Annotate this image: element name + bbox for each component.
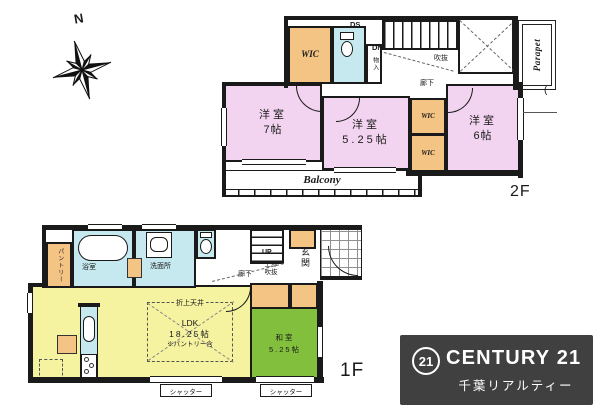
window-marker	[221, 108, 227, 146]
kitchen-sink-fixture	[83, 316, 95, 342]
floor2-label: 2F	[510, 183, 531, 201]
closet-b	[290, 283, 318, 309]
toilet-tank-fixture	[340, 32, 354, 40]
washitsu-room: 和室 5.25帖	[250, 307, 320, 380]
wall-segment	[284, 16, 288, 88]
toilet-bowl-fixture	[341, 41, 353, 57]
north-label: N	[73, 10, 85, 26]
ldk-caption: LDK 18.25帖 ※パントリー含	[147, 318, 233, 350]
company-name: 千葉リアルティー	[446, 375, 586, 394]
pantry-label: パントリー	[55, 248, 63, 283]
floorplan-canvas: N WIC 物入 洋室 7帖 洋室 5.25帖 WIC WIC	[0, 0, 600, 412]
wall-segment	[42, 225, 46, 288]
pantry: パントリー	[46, 242, 72, 288]
window-marker	[242, 159, 306, 165]
toilet-tank-fixture	[200, 232, 212, 238]
wic-label: WIC	[301, 49, 319, 60]
window-marker	[517, 98, 524, 140]
bathroom-label: 浴室	[82, 262, 96, 272]
wall-segment	[320, 276, 362, 280]
vanity-basin-fixture	[150, 237, 168, 252]
balcony-label: Balcony	[303, 174, 340, 188]
ldk-note: ※パントリー含	[147, 341, 233, 350]
shutter-box-left: シャッター	[160, 384, 212, 397]
storage-label: 物入	[370, 57, 378, 71]
stairs-2f	[382, 20, 458, 50]
bathtub-fixture	[78, 235, 128, 261]
room-name: 洋室	[259, 109, 287, 123]
void-label: 吹抜	[434, 53, 448, 63]
window-marker	[256, 376, 314, 383]
parapet-label: Parapet	[532, 39, 542, 72]
stairs-down-label: DN	[372, 43, 383, 52]
room-name: 洋室	[352, 119, 380, 133]
wall-segment	[513, 16, 518, 90]
window-marker	[142, 224, 176, 230]
parapet: Parapet	[518, 20, 556, 90]
duct-space-label: DS	[350, 20, 360, 29]
bath-mat	[127, 258, 142, 278]
balcony-railing	[222, 189, 422, 197]
ldk-size: 18.25帖	[147, 329, 233, 340]
window-marker	[27, 293, 33, 313]
window-marker	[334, 167, 396, 173]
leader-line	[523, 112, 557, 113]
wic-closet-a: WIC	[410, 98, 446, 135]
counter-table	[57, 335, 77, 354]
washroom-label: 洗面所	[150, 261, 171, 271]
wic-closet-b: WIC	[410, 134, 446, 172]
ceiling-label: 折上天井	[147, 298, 233, 308]
closet-a	[250, 283, 290, 309]
century21-logo: 21 CENTURY 21 千葉リアルティー	[400, 335, 593, 405]
compass-rose-icon	[44, 24, 118, 102]
shutter-box-right: シャッター	[260, 384, 312, 397]
room-size: 6帖	[473, 130, 492, 144]
room-name: 和室	[276, 333, 295, 342]
window-marker	[150, 376, 222, 383]
room-size: 7帖	[263, 124, 282, 138]
entrance-label: 玄関	[299, 247, 312, 269]
hallway-label-2f: 廊下	[420, 78, 434, 88]
wall-segment	[222, 82, 292, 86]
wall-segment	[406, 170, 523, 176]
stove-burner	[89, 363, 94, 368]
wic-room-2f: WIC	[288, 26, 332, 84]
stove-burner	[84, 369, 89, 374]
wic-label: WIC	[421, 112, 435, 121]
window-annotation: (	[544, 85, 547, 96]
wall-segment	[28, 283, 46, 287]
window-marker	[88, 224, 122, 230]
wall-segment	[286, 16, 518, 20]
room-size: 5.25帖	[342, 134, 389, 148]
wall-segment	[418, 170, 422, 196]
stairs-1f	[250, 229, 284, 264]
ldk-name: LDK	[147, 318, 233, 329]
stove-burner	[84, 357, 89, 362]
room-size: 5.25帖	[269, 345, 301, 354]
floor1-label: 1F	[340, 360, 364, 382]
wic-label: WIC	[421, 149, 435, 158]
window-marker	[317, 327, 323, 357]
stairs-up-label: UP	[262, 249, 272, 256]
room-name: 洋室	[469, 115, 497, 129]
century21-circle-icon: 21	[412, 347, 440, 375]
brand-name: CENTURY 21	[446, 347, 588, 370]
toilet-bowl-fixture	[200, 239, 212, 254]
entrance-closet	[289, 229, 316, 249]
